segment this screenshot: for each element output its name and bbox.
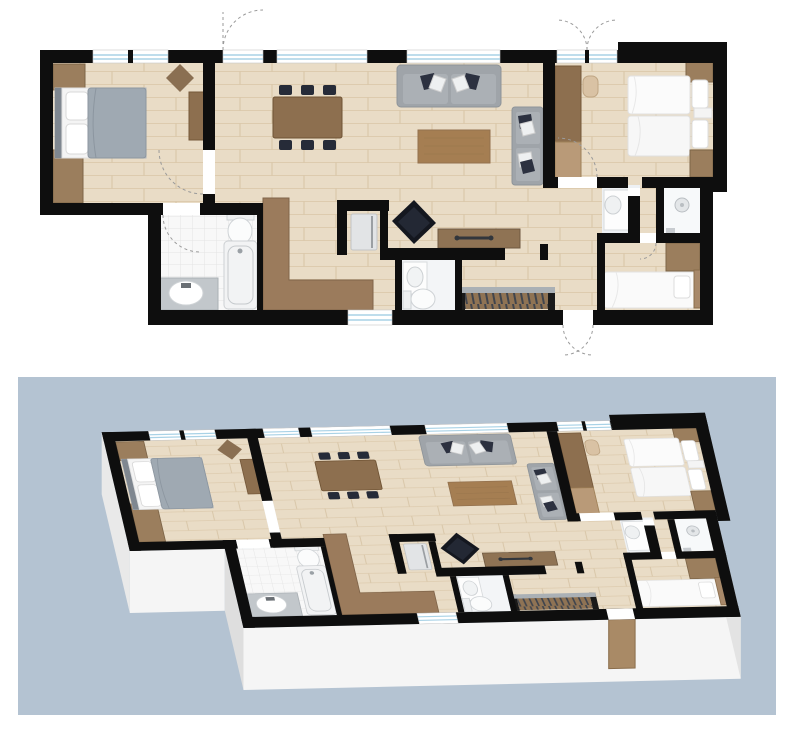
floor-plan-canvas — [0, 0, 800, 731]
wall3d-front-left-face — [130, 549, 225, 613]
entry-door-3d — [609, 619, 635, 669]
wall3d-front-main-face — [244, 617, 741, 690]
